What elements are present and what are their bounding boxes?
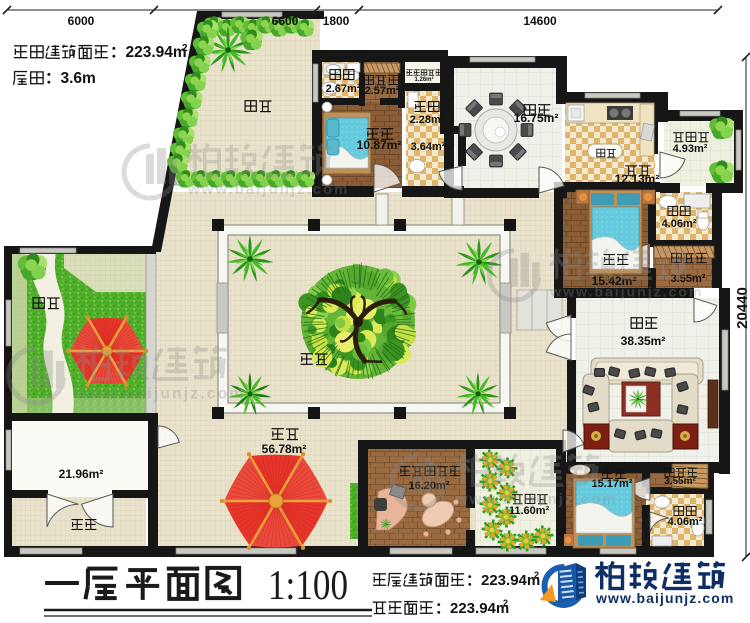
svg-text:38.35m²: 38.35m²: [621, 334, 666, 348]
svg-text:15.17m²: 15.17m²: [592, 478, 633, 490]
svg-text:www.baijunjz.com: www.baijunjz.com: [595, 590, 734, 606]
svg-text:56.78m²: 56.78m²: [262, 442, 307, 456]
svg-text:3.64m²: 3.64m²: [411, 141, 446, 153]
svg-text:4.93m²: 4.93m²: [673, 143, 708, 155]
svg-text:2: 2: [503, 598, 508, 608]
svg-text:1800: 1800: [323, 14, 350, 28]
svg-text:3.55m²: 3.55m²: [664, 476, 696, 487]
svg-text:4.06m²: 4.06m²: [662, 218, 697, 230]
svg-text:2.67m²: 2.67m²: [326, 83, 361, 95]
svg-text:16.75m²: 16.75m²: [514, 111, 559, 125]
svg-text:10.87m²: 10.87m²: [357, 138, 402, 152]
svg-text:2: 2: [534, 570, 539, 580]
svg-text:2.28m²: 2.28m²: [410, 114, 445, 126]
svg-text:1:100: 1:100: [268, 563, 348, 609]
svg-text:1.26m²: 1.26m²: [414, 76, 433, 83]
svg-text:www.baijunjz.com: www.baijunjz.com: [187, 181, 349, 198]
svg-text:：223.94m: ：223.94m: [435, 600, 509, 617]
svg-text:：3.6m: ：3.6m: [45, 70, 96, 87]
svg-text:2.57m²: 2.57m²: [365, 85, 400, 97]
svg-text:20440: 20440: [734, 287, 750, 329]
svg-text:www.baijunjz.com: www.baijunjz.com: [455, 491, 617, 508]
svg-text:www.baijunjz.com: www.baijunjz.com: [75, 386, 246, 403]
svg-text:6000: 6000: [68, 14, 95, 28]
svg-text:：223.94m: ：223.94m: [110, 44, 187, 61]
svg-text:6600: 6600: [272, 14, 299, 28]
svg-text:3.55m²: 3.55m²: [671, 273, 706, 285]
svg-text:：223.94m: ：223.94m: [466, 572, 540, 589]
svg-text:2: 2: [182, 43, 188, 54]
svg-text:14600: 14600: [523, 14, 557, 28]
svg-text:4.06m²: 4.06m²: [668, 516, 703, 528]
svg-text:12.13m²: 12.13m²: [615, 172, 660, 186]
svg-text:www.baijunjz.com: www.baijunjz.com: [549, 284, 703, 300]
svg-text:21.96m²: 21.96m²: [59, 467, 104, 481]
